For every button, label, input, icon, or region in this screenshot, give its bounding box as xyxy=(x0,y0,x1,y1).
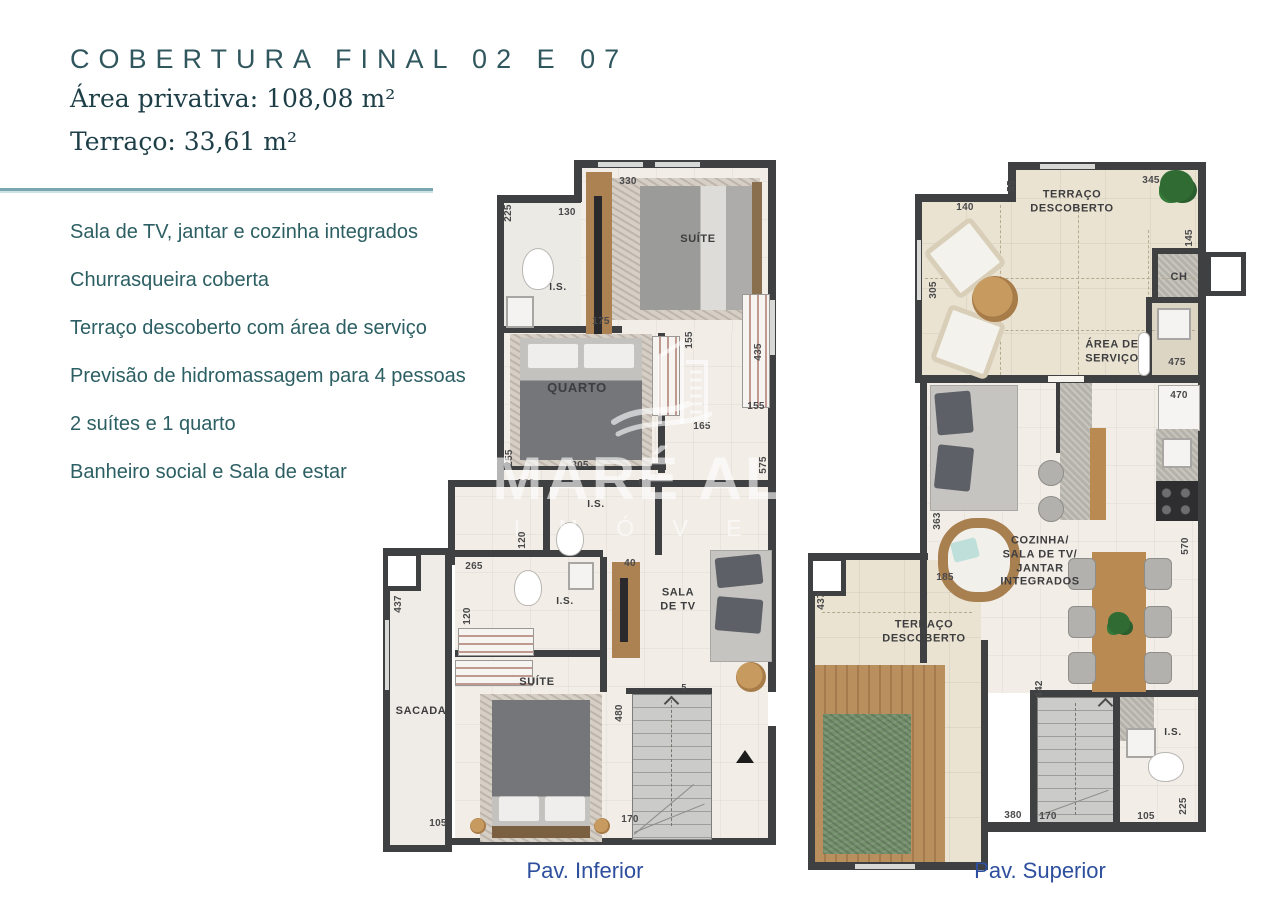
room-label: COZINHA/ SALA DE TV/ JANTAR INTEGRADOS xyxy=(1000,535,1079,590)
floorplan-page: COBERTURA FINAL 02 E 07 Área privativa: … xyxy=(0,0,1273,900)
nightstand xyxy=(470,818,486,834)
entrance-marker xyxy=(736,750,754,763)
dining-chair xyxy=(1144,652,1172,684)
wall xyxy=(448,480,775,487)
dimension-label: 165 xyxy=(693,421,711,434)
closet-shelf xyxy=(652,336,680,416)
dimension-label: 575 xyxy=(758,456,771,474)
sofa-cushion xyxy=(715,554,764,589)
dimension-label: 120 xyxy=(462,607,475,625)
sofa-cushion xyxy=(715,596,764,634)
feature-item: Churrasqueira coberta xyxy=(70,270,510,291)
wall xyxy=(497,195,504,487)
room-label: TERRAÇO DESCOBERTO xyxy=(882,618,965,646)
kitchen-sink xyxy=(1162,438,1192,468)
dimension-label: 380 xyxy=(1004,810,1022,823)
wall xyxy=(497,195,581,203)
stool xyxy=(1038,496,1064,522)
feature-list: Sala de TV, jantar e cozinha integrados … xyxy=(70,222,510,510)
dimension-label: 90 xyxy=(638,478,650,491)
stairs-guide xyxy=(1075,703,1076,815)
wall xyxy=(920,375,927,560)
bath-shelf xyxy=(458,628,534,656)
island-wood xyxy=(1090,428,1106,520)
table-plant xyxy=(1108,612,1130,634)
door-leaf xyxy=(1138,332,1150,376)
wall xyxy=(445,555,452,852)
stove xyxy=(1156,481,1198,521)
wall xyxy=(1030,690,1037,830)
wall xyxy=(1152,297,1200,303)
wall xyxy=(455,550,603,557)
feature-item: Terraço descoberto com área de serviço xyxy=(70,318,510,339)
sofa-cushion xyxy=(934,391,974,436)
dimension-label: 570 xyxy=(1180,537,1193,555)
sink xyxy=(568,562,594,590)
pillow xyxy=(527,343,579,369)
pillow xyxy=(498,796,540,822)
room-label: SALA DE TV xyxy=(660,586,695,614)
dimension-label: 130 xyxy=(558,207,576,220)
dimension-label: 200 xyxy=(517,478,535,491)
wall xyxy=(985,822,1205,832)
dimension-label: 155 xyxy=(747,401,765,414)
stairs-guide xyxy=(671,700,672,826)
room-label: CH xyxy=(1170,271,1187,285)
wall xyxy=(383,548,390,852)
room-label: I.S. xyxy=(556,596,573,609)
dimension-label: 437 xyxy=(816,592,829,610)
divider-line xyxy=(0,188,433,193)
wall xyxy=(981,640,988,870)
dimension-label: 185 xyxy=(936,572,954,585)
room-label: SUÍTE xyxy=(680,233,715,247)
pillow xyxy=(544,796,586,822)
wall xyxy=(1152,248,1158,303)
dimension-label: 225 xyxy=(503,204,516,222)
wall xyxy=(1198,162,1206,832)
room-label: I.S. xyxy=(587,499,604,512)
dimension-label: 363 xyxy=(932,512,945,530)
wall xyxy=(1008,162,1200,170)
exterior-box xyxy=(808,556,846,596)
dimension-label: 442 xyxy=(1034,680,1047,698)
room-label: TERRAÇO DESCOBERTO xyxy=(1030,188,1113,216)
dining-chair xyxy=(1068,606,1096,638)
caption-pav-inferior: Pav. Inferior xyxy=(527,858,644,884)
feature-item: 2 suítes e 1 quarto xyxy=(70,414,510,435)
feature-item: Sala de TV, jantar e cozinha integrados xyxy=(70,222,510,243)
dimension-label: 5 xyxy=(681,682,686,693)
window xyxy=(917,240,921,300)
dimension-label: 225 xyxy=(1178,797,1191,815)
wall xyxy=(655,487,662,555)
pillow xyxy=(583,343,635,369)
room-label: QUARTO xyxy=(547,380,607,396)
room-label: ÁREA DE SERVIÇO xyxy=(1085,338,1139,366)
wall xyxy=(383,845,452,852)
sink xyxy=(1126,728,1156,758)
dimension-label: 480 xyxy=(614,704,627,722)
stool xyxy=(1038,460,1064,486)
headboard xyxy=(492,826,590,838)
room-label: I.S. xyxy=(1164,727,1181,740)
plant xyxy=(1160,170,1194,202)
dimension-label: 105 xyxy=(1137,811,1155,824)
dimension-label: 55 xyxy=(1006,180,1019,192)
window xyxy=(855,864,915,869)
dimension-label: 170 xyxy=(1039,811,1057,824)
wall xyxy=(768,726,776,845)
exterior-box xyxy=(383,551,421,591)
dimension-label: 475 xyxy=(1168,357,1186,370)
caption-pav-superior: Pav. Superior xyxy=(974,858,1106,884)
page-title: COBERTURA FINAL 02 E 07 xyxy=(70,44,628,75)
terrace-grid xyxy=(1078,205,1079,375)
island-counter xyxy=(1060,383,1092,520)
tv-screen xyxy=(620,578,628,642)
dimension-label: 255 xyxy=(504,449,517,467)
room-label: SUÍTE xyxy=(519,676,554,690)
wall xyxy=(543,487,550,557)
stairs xyxy=(1037,697,1115,825)
dining-chair xyxy=(1144,558,1172,590)
wall xyxy=(1113,690,1120,830)
sofa-cushion xyxy=(934,444,974,492)
exterior-hatch xyxy=(1206,252,1246,296)
side-table xyxy=(736,662,766,692)
room-label: I.S. xyxy=(549,282,566,295)
private-area-text: Área privativa: 108,08 m² xyxy=(70,84,395,113)
dimension-label: 105 xyxy=(429,818,447,831)
round-table xyxy=(972,276,1018,322)
dimension-label: 140 xyxy=(956,202,974,215)
plunge-pool xyxy=(823,714,911,854)
stairs xyxy=(632,694,712,840)
dimension-label: 175 xyxy=(592,316,610,329)
dimension-label: 40 xyxy=(624,558,636,571)
dimension-label: 330 xyxy=(619,176,637,189)
terrace-area-text: Terraço: 33,61 m² xyxy=(70,127,297,156)
nightstand xyxy=(594,818,610,834)
feature-item: Previsão de hidromassagem para 4 pessoas xyxy=(70,366,510,387)
dimension-label: 470 xyxy=(1170,390,1188,403)
window xyxy=(770,300,775,355)
dimension-label: 155 xyxy=(684,331,697,349)
dining-chair xyxy=(1068,652,1096,684)
window xyxy=(655,162,700,167)
bed xyxy=(640,186,756,310)
washer xyxy=(1157,308,1191,340)
window xyxy=(1040,164,1095,169)
sink xyxy=(506,296,534,328)
dimension-label: 145 xyxy=(1184,229,1197,247)
feature-item: Banheiro social e Sala de estar xyxy=(70,462,510,483)
dimension-label: 120 xyxy=(517,531,530,549)
dimension-label: 345 xyxy=(1142,175,1160,188)
wall xyxy=(1152,248,1200,254)
window xyxy=(385,620,389,690)
room-label: SACADA xyxy=(396,705,447,719)
dimension-label: 435 xyxy=(753,343,766,361)
toilet xyxy=(1148,752,1184,782)
door-opening xyxy=(1048,376,1084,382)
wall xyxy=(920,553,927,663)
dimension-label: 170 xyxy=(621,814,639,827)
dimension-label: 305 xyxy=(571,460,589,473)
wall xyxy=(808,553,815,870)
wall xyxy=(600,557,607,692)
terrace-grid xyxy=(822,612,972,613)
dimension-label: 265 xyxy=(465,561,483,574)
window xyxy=(598,162,643,167)
toilet xyxy=(514,570,542,606)
dimension-label: 305 xyxy=(928,281,941,299)
toilet xyxy=(556,522,584,556)
dimension-label: 437 xyxy=(393,595,406,613)
dining-chair xyxy=(1144,606,1172,638)
